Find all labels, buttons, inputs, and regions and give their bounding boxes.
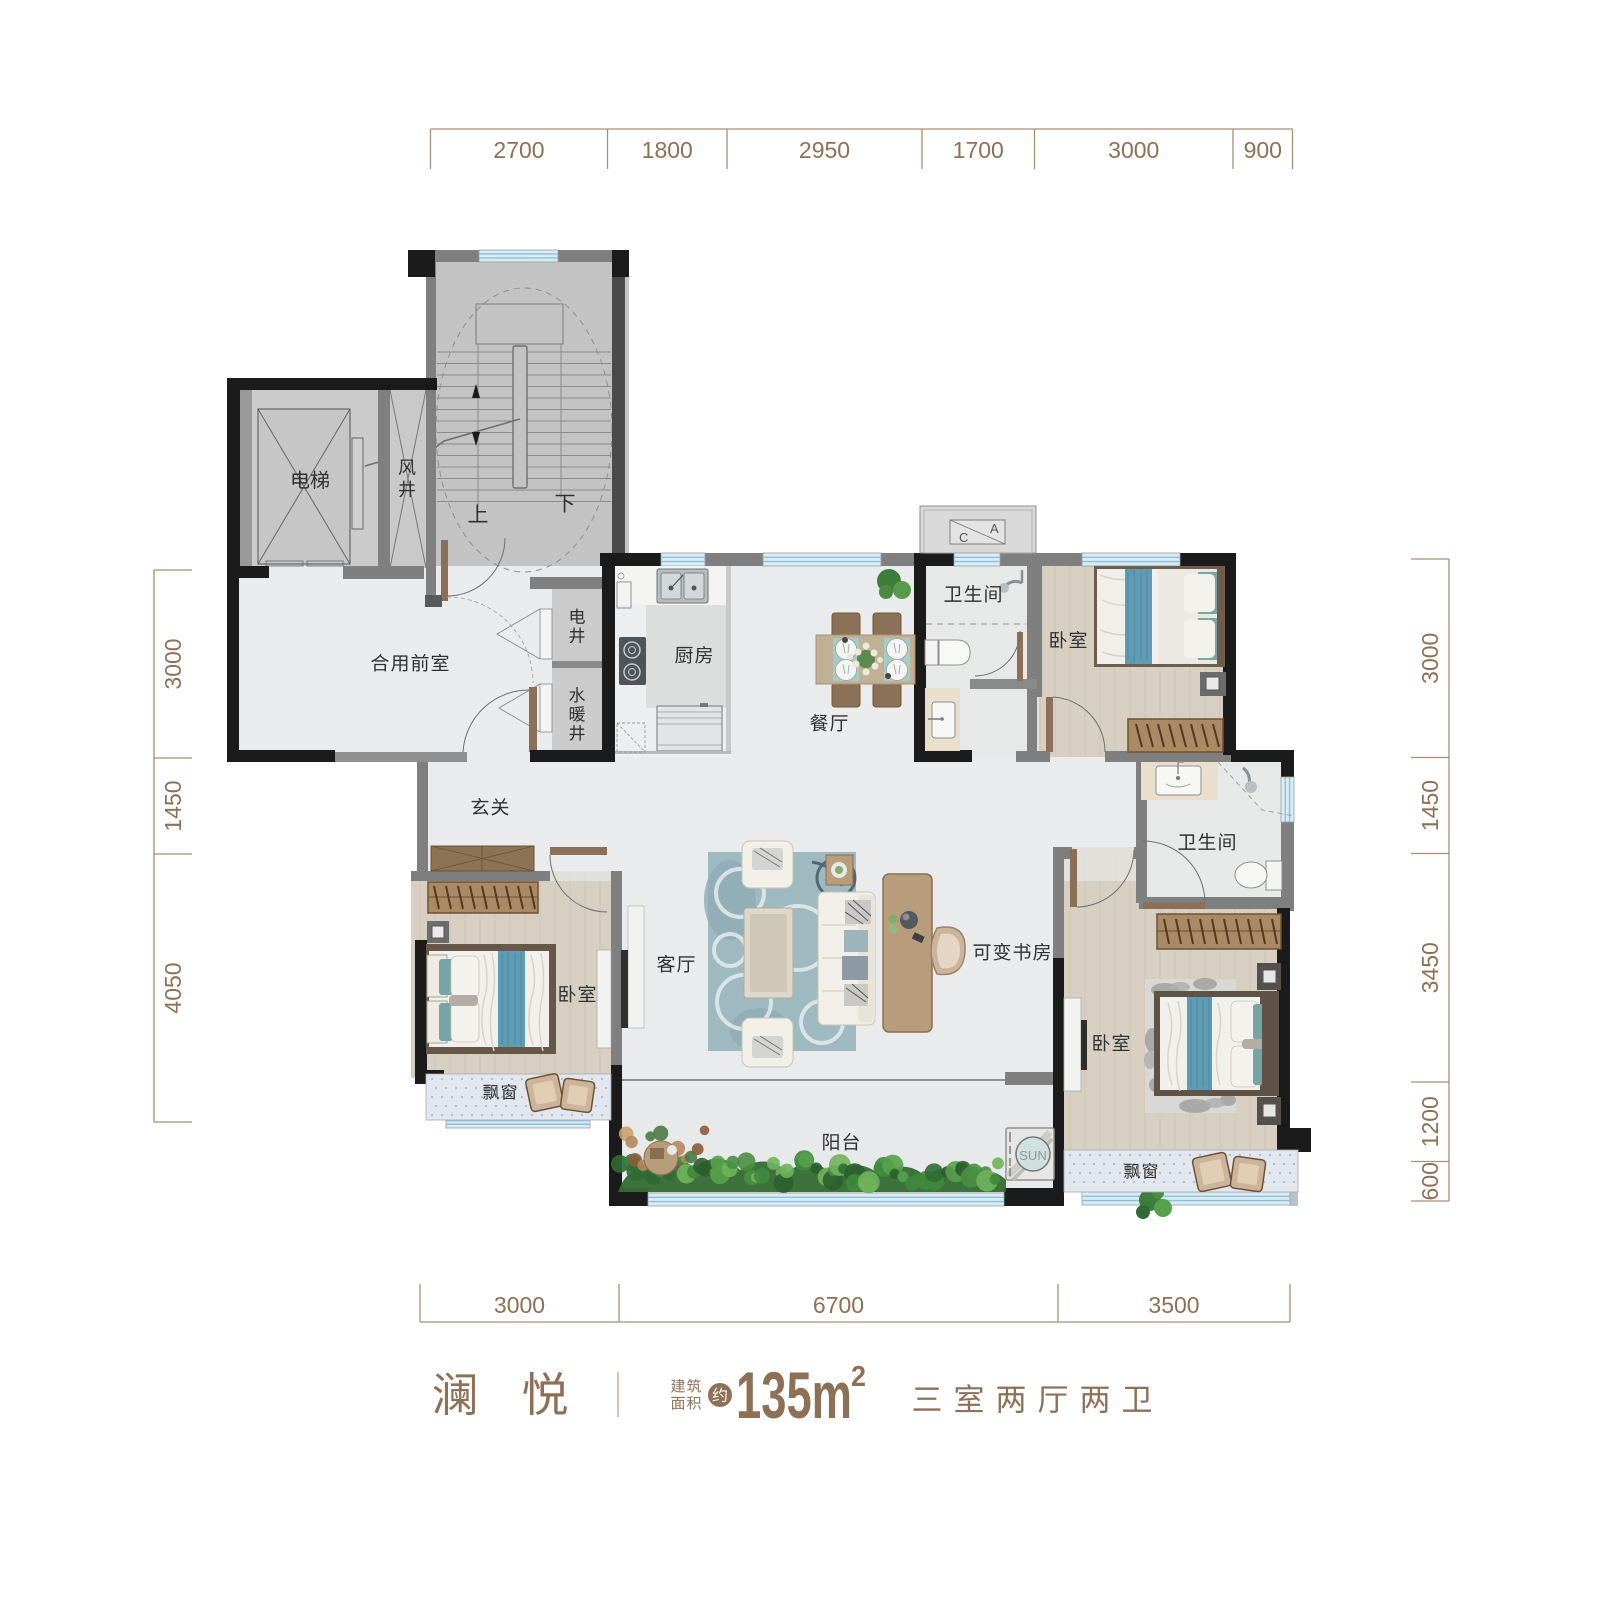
svg-text:6700: 6700 (813, 1292, 864, 1318)
svg-text:A: A (990, 521, 999, 536)
svg-text:3500: 3500 (1148, 1292, 1199, 1318)
svg-text:1800: 1800 (642, 137, 693, 163)
svg-text:2950: 2950 (799, 137, 850, 163)
svg-text:600: 600 (1417, 1162, 1443, 1200)
svg-text:1200: 1200 (1417, 1096, 1443, 1147)
svg-text:4050: 4050 (160, 962, 186, 1013)
svg-text:3450: 3450 (1417, 942, 1443, 993)
svg-text:135m: 135m (736, 1358, 852, 1432)
svg-text:2: 2 (851, 1361, 866, 1393)
svg-text:3000: 3000 (494, 1292, 545, 1318)
svg-text:1700: 1700 (953, 137, 1004, 163)
svg-text:1450: 1450 (1417, 780, 1443, 831)
svg-text:3000: 3000 (1417, 633, 1443, 684)
svg-text:C: C (959, 530, 968, 545)
svg-text:900: 900 (1244, 137, 1282, 163)
svg-text:3000: 3000 (1108, 137, 1159, 163)
svg-text:2700: 2700 (493, 137, 544, 163)
svg-text:1450: 1450 (160, 780, 186, 831)
svg-text:3000: 3000 (160, 638, 186, 689)
svg-text:SUN: SUN (1019, 1148, 1046, 1163)
